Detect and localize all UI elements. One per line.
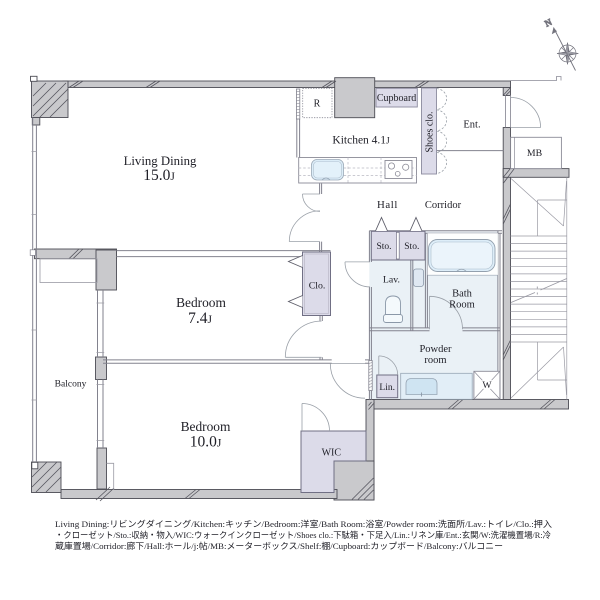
svg-text:Corridor: Corridor [425, 200, 462, 211]
svg-text:Bath: Bath [452, 289, 473, 300]
svg-text:Lav.: Lav. [383, 274, 400, 285]
svg-text:R: R [314, 99, 321, 110]
svg-text:Bedroom: Bedroom [181, 419, 231, 434]
svg-text:W: W [482, 380, 492, 391]
svg-text:Sto.: Sto. [404, 242, 419, 252]
svg-text:room: room [424, 355, 446, 366]
svg-text:Ent.: Ent. [463, 120, 480, 131]
svg-text:Clo.: Clo. [309, 281, 326, 292]
svg-text:Balcony: Balcony [55, 380, 87, 390]
svg-text:Hall: Hall [377, 199, 398, 211]
svg-text:Room: Room [449, 300, 475, 311]
svg-text:Cupboard: Cupboard [377, 93, 416, 104]
svg-text:Bedroom: Bedroom [176, 295, 226, 310]
svg-text:・クローゼット/Sto.:収納・物入/WIC:ウォークインク: ・クローゼット/Sto.:収納・物入/WIC:ウォークインクローゼット/Shoe… [55, 529, 551, 540]
svg-text:Sto.: Sto. [376, 242, 391, 252]
svg-text:蔵庫置場/Corridor:廊下/Hall:ホール/j:帖/: 蔵庫置場/Corridor:廊下/Hall:ホール/j:帖/MB:メーターボック… [55, 540, 503, 551]
svg-text:Shoes clo.: Shoes clo. [425, 111, 436, 152]
svg-text:Living Dining: Living Dining [124, 154, 197, 168]
svg-text:Living Dining:リビングダイニング/Kitche: Living Dining:リビングダイニング/Kitchen:キッチン/Bed… [55, 518, 552, 529]
svg-text:Kitchen 4.1J: Kitchen 4.1J [332, 135, 390, 147]
svg-text:Powder: Powder [419, 344, 452, 355]
svg-text:Lin.: Lin. [379, 383, 395, 393]
svg-text:MB: MB [527, 148, 543, 159]
svg-text:WIC: WIC [322, 448, 342, 459]
